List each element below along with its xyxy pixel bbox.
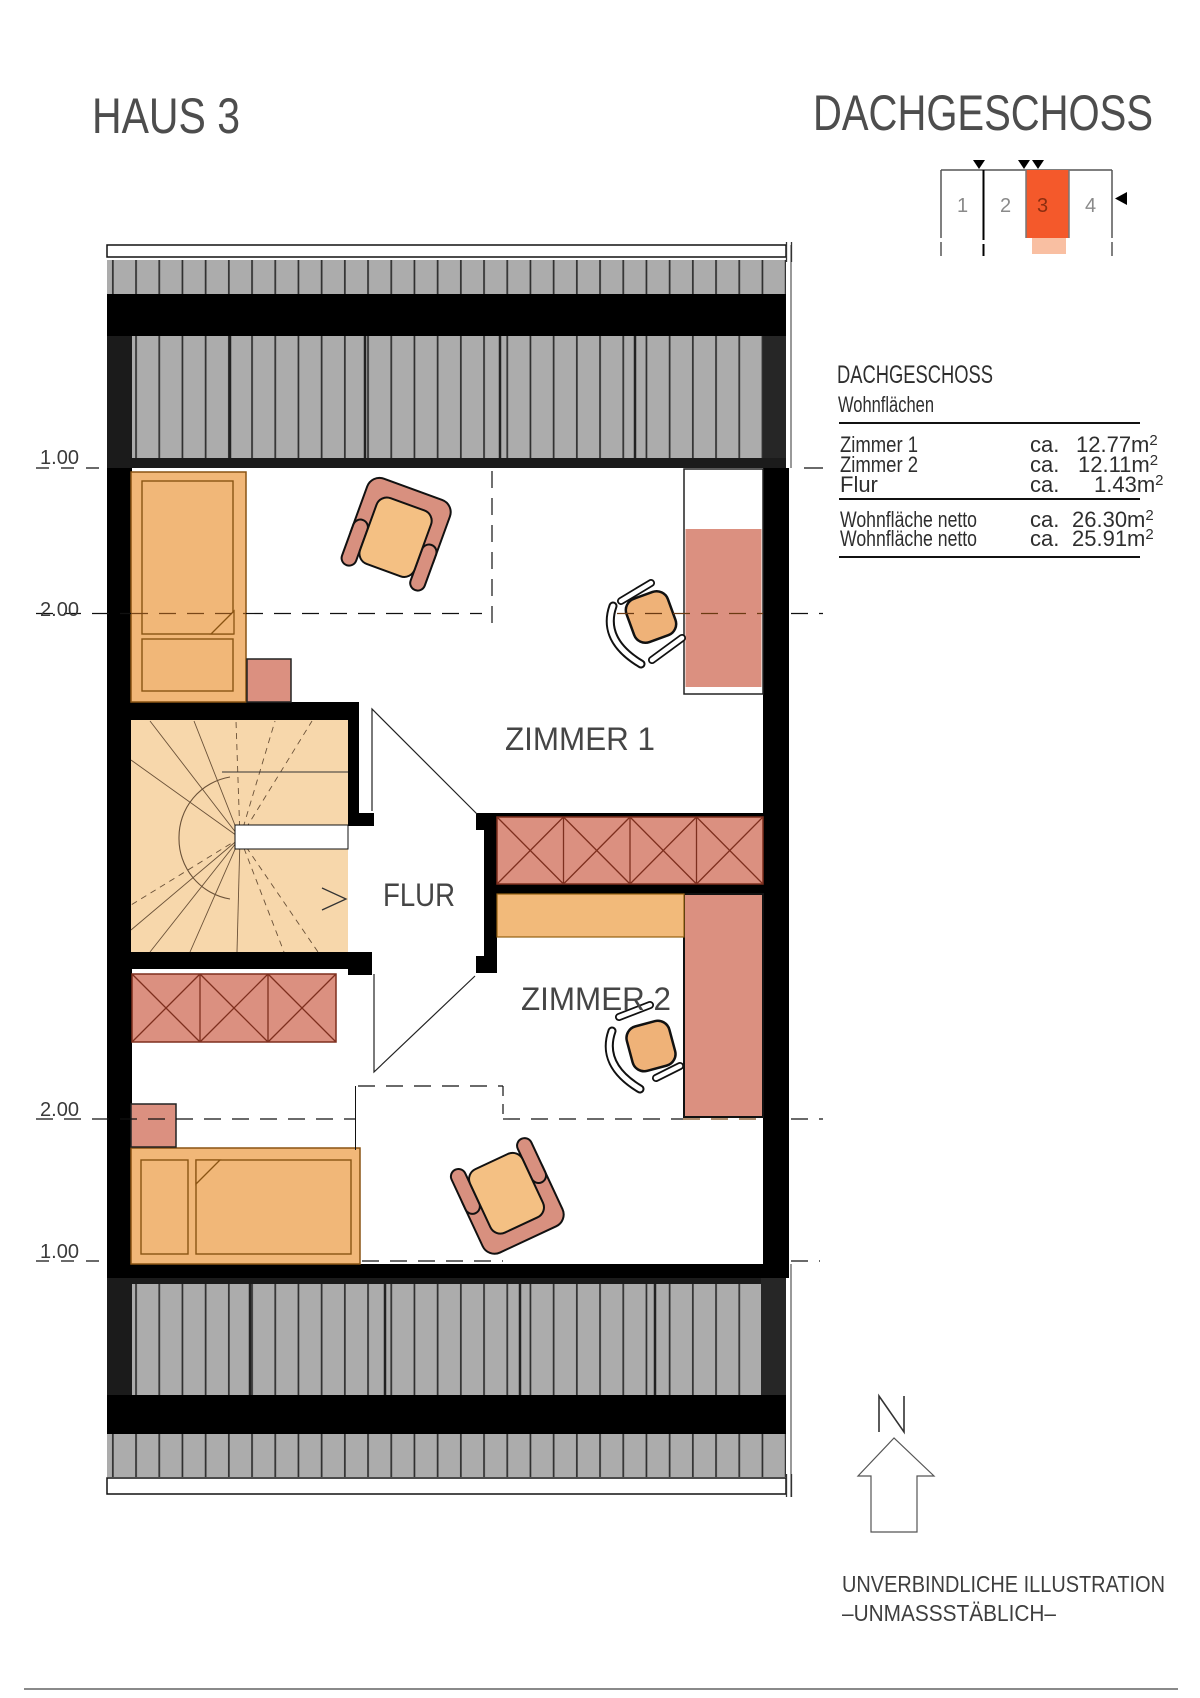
svg-text:ZIMMER 2: ZIMMER 2 [521,981,671,1017]
svg-text:1.00: 1.00 [40,447,79,469]
svg-text:ca.: ca. [1030,472,1059,497]
svg-text:1.00: 1.00 [40,1241,79,1263]
svg-text:UNVERBINDLICHE ILLUSTRATION: UNVERBINDLICHE ILLUSTRATION [842,1571,1165,1597]
svg-text:FLUR: FLUR [383,877,455,913]
svg-text:DACHGESCHOSS: DACHGESCHOSS [837,361,993,389]
svg-text:–UNMASSSTÄBLICH–: –UNMASSSTÄBLICH– [842,1600,1056,1626]
svg-text:25.91m2: 25.91m2 [1072,526,1154,551]
svg-text:Wohnfläche netto: Wohnfläche netto [840,526,977,551]
svg-text:4: 4 [1085,195,1096,217]
svg-text:2.00: 2.00 [40,599,79,621]
svg-text:HAUS 3: HAUS 3 [92,88,240,144]
svg-text:Wohnflächen: Wohnflächen [838,392,934,417]
svg-text:2.00: 2.00 [40,1099,79,1121]
svg-text:Flur: Flur [840,472,878,497]
svg-text:DACHGESCHOSS: DACHGESCHOSS [813,85,1153,141]
svg-text:2: 2 [1000,195,1011,217]
svg-text:ZIMMER 1: ZIMMER 1 [505,721,655,757]
svg-text:1.43m2: 1.43m2 [1094,472,1164,497]
svg-text:ca.: ca. [1030,526,1059,551]
svg-text:1: 1 [957,195,968,217]
svg-text:3: 3 [1037,195,1048,217]
